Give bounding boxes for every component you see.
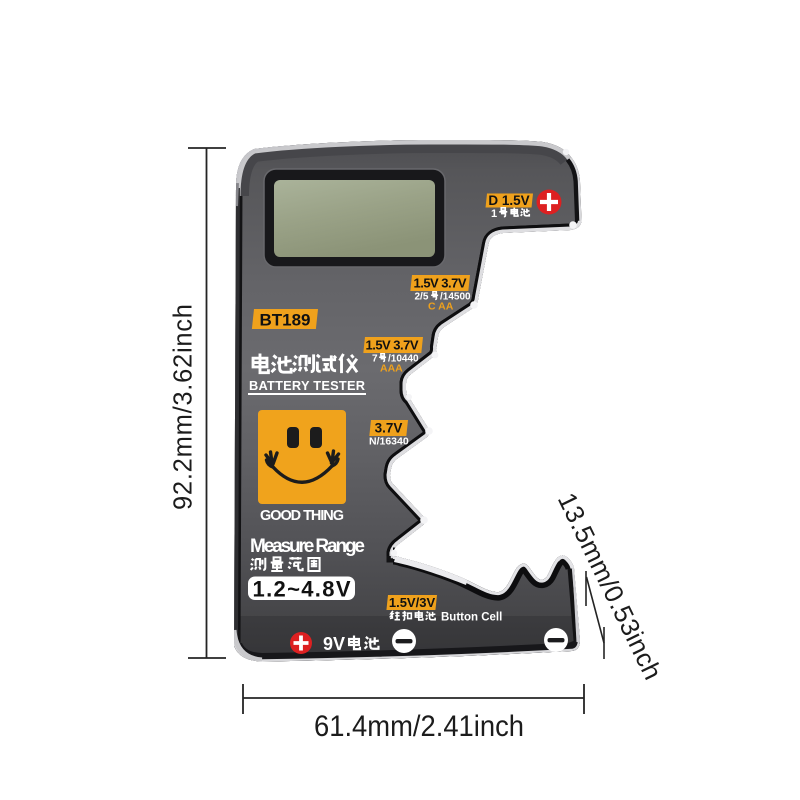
svg-text:1.2~4.8V: 1.2~4.8V (253, 577, 351, 602)
svg-text:GOOD THING: GOOD THING (260, 508, 344, 524)
svg-text:1: 1 (491, 208, 497, 220)
svg-text:AAA: AAA (380, 363, 403, 375)
svg-text:1.5V/3V: 1.5V/3V (389, 595, 436, 610)
svg-text:92.2mm/3.62inch: 92.2mm/3.62inch (170, 304, 198, 510)
svg-text:2/5: 2/5 (415, 292, 429, 303)
svg-text:1.5V 3.7V: 1.5V 3.7V (366, 338, 419, 353)
svg-text:N/16340: N/16340 (369, 436, 409, 448)
svg-text:BT189: BT189 (259, 311, 310, 330)
svg-text:D 1.5V: D 1.5V (488, 193, 529, 208)
svg-text:61.4mm/2.41inch: 61.4mm/2.41inch (314, 710, 524, 743)
svg-text:7: 7 (372, 354, 378, 365)
svg-text:1.5V 3.7V: 1.5V 3.7V (414, 276, 467, 291)
svg-text:Measure Range: Measure Range (250, 536, 365, 557)
svg-text:Button Cell: Button Cell (441, 612, 502, 624)
svg-text:C AA: C AA (428, 301, 454, 313)
svg-text:BATTERY TESTER: BATTERY TESTER (249, 378, 365, 393)
svg-text:9V: 9V (323, 634, 345, 654)
svg-text:3.7V: 3.7V (375, 421, 403, 436)
